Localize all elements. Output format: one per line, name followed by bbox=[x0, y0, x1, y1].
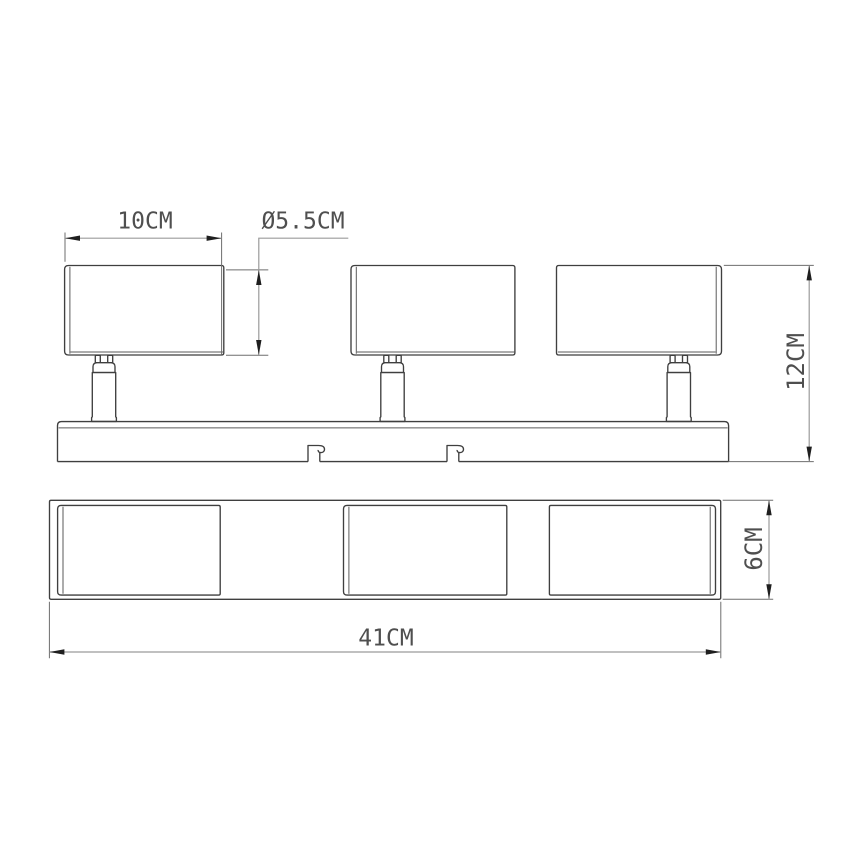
stem-body bbox=[92, 373, 117, 422]
arrow-left bbox=[65, 236, 80, 241]
drawing-canvas bbox=[0, 0, 868, 868]
dimension-head-diameter bbox=[226, 238, 348, 355]
front-panel-2 bbox=[344, 505, 507, 595]
stem-nub-right bbox=[683, 355, 688, 362]
arrow-right bbox=[706, 649, 721, 654]
front-panel-2-outline bbox=[344, 505, 507, 595]
technical-drawing-page: 10CM Ø5.5CM 12CM 6CM 41CM bbox=[0, 0, 868, 868]
stem-nub-right bbox=[108, 355, 113, 362]
dim-label-fixture-height: 12CM bbox=[784, 333, 808, 391]
front-panel-1-outline bbox=[58, 505, 221, 595]
keyhole-notch-2 bbox=[447, 446, 464, 462]
stem-nub-left bbox=[384, 355, 389, 362]
spot-head-1-outline bbox=[65, 266, 224, 356]
arrow-down bbox=[807, 447, 812, 462]
stem-nub-left bbox=[670, 355, 675, 362]
swivel-stem-3 bbox=[666, 355, 691, 421]
stem-collar bbox=[668, 363, 690, 373]
base-front-outline bbox=[50, 500, 721, 599]
arrow-right bbox=[207, 236, 222, 241]
dim-label-head-width: 10CM bbox=[117, 211, 172, 234]
spot-head-2-outline bbox=[351, 266, 515, 356]
keyhole-notch-1 bbox=[308, 446, 325, 462]
stem-nub-left bbox=[95, 355, 100, 362]
dim-label-base-height: 6CM bbox=[742, 527, 766, 570]
extension-line bbox=[226, 270, 268, 355]
arrow-up bbox=[256, 270, 261, 285]
arrow-down bbox=[766, 584, 771, 599]
arrow-down bbox=[256, 340, 261, 355]
stem-body bbox=[666, 373, 691, 422]
arrow-up bbox=[807, 265, 812, 280]
spot-head-3 bbox=[557, 266, 722, 356]
front-panel-1 bbox=[58, 505, 221, 595]
spot-head-2 bbox=[351, 266, 515, 356]
spot-head-1 bbox=[65, 266, 224, 356]
stem-nub-right bbox=[396, 355, 401, 362]
stem-collar bbox=[93, 363, 115, 373]
stem-body bbox=[380, 373, 405, 422]
dim-label-total-width: 41CM bbox=[358, 627, 413, 650]
dimension-head-width bbox=[65, 233, 222, 355]
mounting-bar bbox=[58, 422, 729, 462]
arrow-up bbox=[766, 500, 771, 515]
front-view bbox=[50, 500, 721, 599]
side-view bbox=[58, 266, 729, 462]
dim-label-head-diameter: Ø5.5CM bbox=[261, 211, 344, 234]
swivel-stem-1 bbox=[92, 355, 117, 421]
arrow-left bbox=[49, 649, 64, 654]
stem-collar bbox=[382, 363, 404, 373]
extension-line bbox=[65, 233, 222, 355]
spot-head-3-outline bbox=[557, 266, 722, 356]
leader-and-dimension-line bbox=[259, 238, 349, 355]
swivel-stem-2 bbox=[380, 355, 405, 421]
front-panel-3-outline bbox=[549, 505, 715, 595]
front-panel-3 bbox=[549, 505, 715, 595]
